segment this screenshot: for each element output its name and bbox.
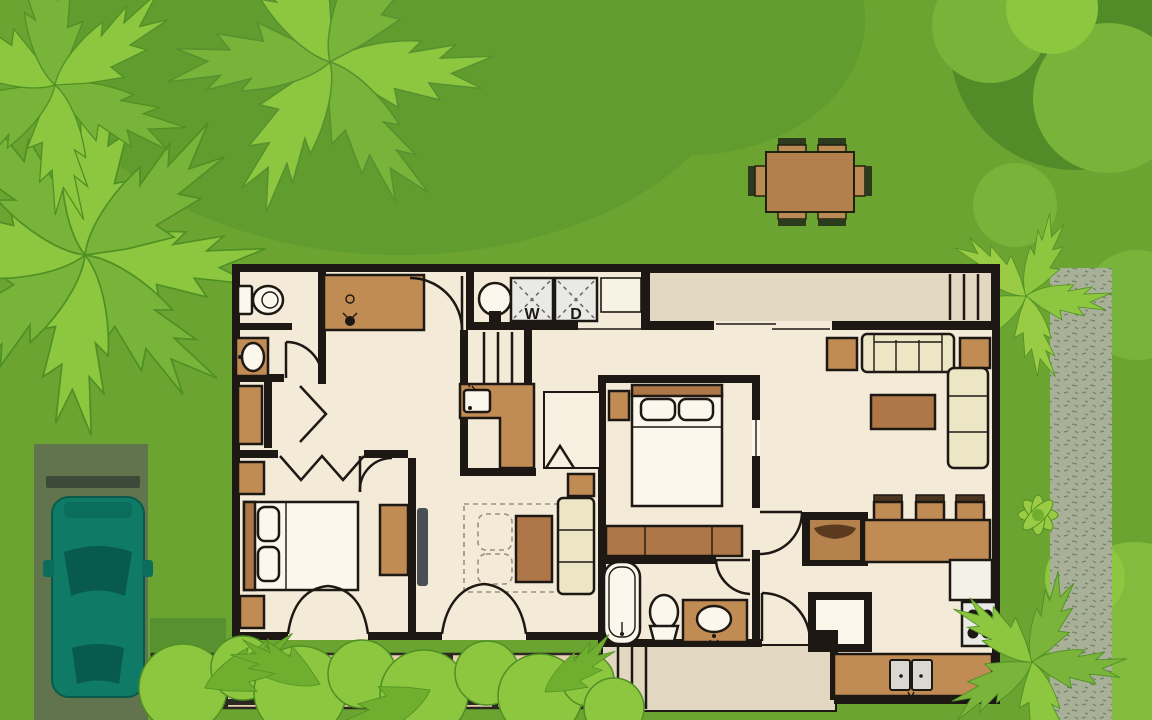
chaise [948,368,988,468]
loveseat [558,498,594,594]
coffee-table-living [871,395,935,429]
bar-stool [916,495,944,522]
breakfast-bar [864,520,990,562]
nightstand [238,462,264,494]
nightstand [609,391,629,420]
toilet-2 [650,595,678,641]
bathtub [604,562,640,644]
sofa [862,334,954,372]
vanity-sink-1 [236,338,268,376]
dryer: D [555,278,597,323]
outdoor-dining-set [748,138,872,226]
toilet-1 [238,286,283,314]
fireplace [802,512,868,566]
bar-stool [956,495,984,522]
car [43,497,153,697]
car-mirror-right [142,560,153,577]
refrigerator [950,560,992,600]
dresser [380,505,408,575]
washer: W [511,278,553,323]
bar-stool [874,495,902,522]
laundry-counter [601,278,641,312]
linen-cabinet [238,386,262,444]
hall-closet [544,392,600,468]
floor-plan-illustration: W D [0,0,1152,720]
coffee-table-family [516,516,552,582]
bed-1 [244,502,358,590]
dryer-label: D [570,306,582,323]
scene-canvas: W D [0,0,1152,720]
entry-closet [808,592,872,652]
utility-cabinet [324,275,424,330]
patio-table [766,152,854,212]
side-table-living [960,338,990,368]
sliding-glass-door [714,321,832,331]
vanity-sink-2 [683,600,747,645]
window-bedroom-2 [752,420,760,456]
bed-2 [632,385,722,506]
side-table-living [827,338,857,370]
side-table-family [568,474,594,496]
parking-stop [46,476,140,488]
washer-label: W [524,306,540,323]
rosette-plant [1018,495,1058,535]
nightstand [240,596,264,628]
front-deck [649,272,992,322]
wall-tv [417,508,428,586]
dresser-3-section [606,526,742,556]
car-mirror-left [43,560,54,577]
